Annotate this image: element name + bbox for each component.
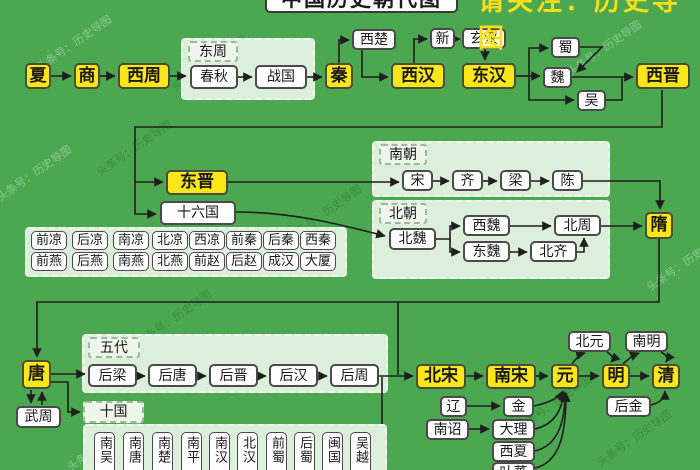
dynasty-flowchart: 头条号：历史导图 头条号：历史导图 头条号：历史导图 头条号：历史导图 头条号：… (0, 0, 700, 470)
node-houzhao: 后赵 (226, 252, 262, 271)
edge-wu-xijin (606, 78, 622, 100)
node-wei: 魏 (543, 67, 572, 88)
edge-houjin-qing (651, 391, 665, 405)
node-xixia: 西夏 (492, 441, 535, 462)
node-nanhan: 南汉 (209, 432, 230, 470)
node-xiqin: 西秦 (300, 231, 336, 250)
edge-xihan-xin (414, 39, 427, 63)
node-xijin: 西晋 (636, 63, 690, 89)
edge-xichu-xihan (362, 50, 388, 77)
node-wuzhou: 武周 (16, 406, 61, 428)
node-nansong: 南宋 (486, 364, 536, 389)
node-beiyuan: 北元 (568, 331, 611, 352)
node-liang: 梁 (500, 170, 531, 191)
node-beiliang: 北凉 (152, 231, 188, 250)
node-liao: 辽 (440, 396, 467, 417)
node-beiwei: 北魏 (389, 228, 436, 250)
node-zhanguo: 战国 (255, 65, 307, 89)
node-minguo: 闽国 (322, 432, 343, 470)
node-nanming: 南明 (625, 331, 668, 352)
edge-tubo-yuan (535, 393, 566, 468)
node-houliang: 后梁 (88, 364, 137, 387)
node-nanwu: 南吴 (94, 432, 115, 470)
node-donghan: 东汉 (462, 63, 516, 89)
node-song: 宋 (402, 170, 433, 191)
node-shiliuguo: 十六国 (160, 201, 236, 225)
edge-dali-yuan (535, 392, 564, 429)
node-wuyue: 吴越 (350, 432, 371, 470)
watermark: 头条号：历史导图 (93, 116, 174, 180)
node-xichu: 西楚 (352, 29, 396, 50)
edge-yuan-beiyuan (572, 353, 585, 364)
edge-beiyuan-ming (607, 352, 612, 362)
watermark: 头条号：历史导图 (643, 231, 700, 295)
node-houzhou: 后周 (330, 364, 379, 387)
node-jin: 金 (503, 396, 534, 417)
node-nanzhao: 南诏 (426, 419, 469, 440)
node-houqin: 后秦 (263, 231, 299, 250)
node-xin: 新 (430, 28, 455, 49)
node-houyan: 后燕 (72, 252, 108, 271)
watermark: 头条号：历史导图 (0, 141, 75, 205)
node-dongjin: 东晋 (166, 170, 228, 195)
node-daxia: 大厦 (300, 252, 336, 271)
node-qi: 齐 (452, 170, 483, 191)
node-beiqi: 北齐 (530, 241, 577, 262)
node-ming: 明 (602, 364, 630, 389)
node-wu: 吴 (577, 90, 606, 111)
subtitle: 请关注：历史导图 (478, 0, 700, 55)
node-houtang: 后唐 (148, 364, 197, 387)
node-xiliang: 西凉 (189, 231, 225, 250)
edge-qin-xichu (339, 40, 349, 63)
node-chenghan: 成汉 (263, 252, 299, 271)
node-nanliang-16: 南凉 (113, 231, 149, 250)
group-label-beichao: 北朝 (379, 203, 427, 224)
group-label-nanchao: 南朝 (379, 144, 427, 165)
node-qianzhao: 前赵 (189, 252, 225, 271)
node-xizhou: 西周 (118, 63, 170, 89)
node-dongwei: 东魏 (463, 241, 510, 262)
node-sui: 隋 (645, 212, 673, 239)
node-qing: 清 (652, 364, 680, 389)
node-qianyan: 前燕 (31, 252, 67, 271)
node-xiwei: 西魏 (463, 215, 510, 236)
node-shang: 商 (74, 63, 100, 89)
node-qianliang: 前凉 (31, 231, 67, 250)
node-nanyan: 南燕 (113, 252, 149, 271)
group-label-wudai: 五代 (88, 337, 140, 358)
edge-jin-yuan (534, 391, 563, 406)
node-dali: 大理 (492, 419, 535, 440)
node-yuan: 元 (551, 364, 579, 389)
node-tubo: 叶蕃 (492, 462, 535, 470)
node-beiyan: 北燕 (152, 252, 188, 271)
node-tang: 唐 (22, 360, 51, 389)
edge-ming-nanming (623, 353, 639, 364)
node-houliang-16: 后凉 (72, 231, 108, 250)
node-nanping: 南平 (181, 432, 202, 470)
node-houjin-later: 后金 (606, 396, 651, 417)
edge-xixia-yuan (535, 393, 565, 451)
node-qin: 秦 (325, 63, 353, 89)
node-beihan: 北汉 (237, 432, 258, 470)
node-houjin: 后晋 (209, 364, 258, 387)
node-xia: 夏 (25, 63, 51, 89)
node-houshu: 后蜀 (294, 432, 315, 470)
group-label-dongzhou: 东周 (188, 41, 238, 62)
node-nanchu: 南楚 (152, 432, 173, 470)
node-houhan: 后汉 (269, 364, 318, 387)
page-title: 中国历史朝代图 (265, 0, 458, 13)
node-xihan: 西汉 (391, 63, 445, 89)
node-nantang: 南唐 (123, 432, 144, 470)
node-chen: 陈 (552, 170, 583, 191)
group-label-shiguo: 十国 (83, 401, 144, 423)
node-beisong: 北宋 (416, 364, 466, 389)
node-qianshu: 前蜀 (266, 432, 287, 470)
node-beizhou: 北周 (554, 215, 601, 236)
node-qianqin: 前秦 (226, 231, 262, 250)
node-chunqiu: 春秋 (190, 65, 238, 89)
edge-nanming-qing (661, 352, 667, 362)
